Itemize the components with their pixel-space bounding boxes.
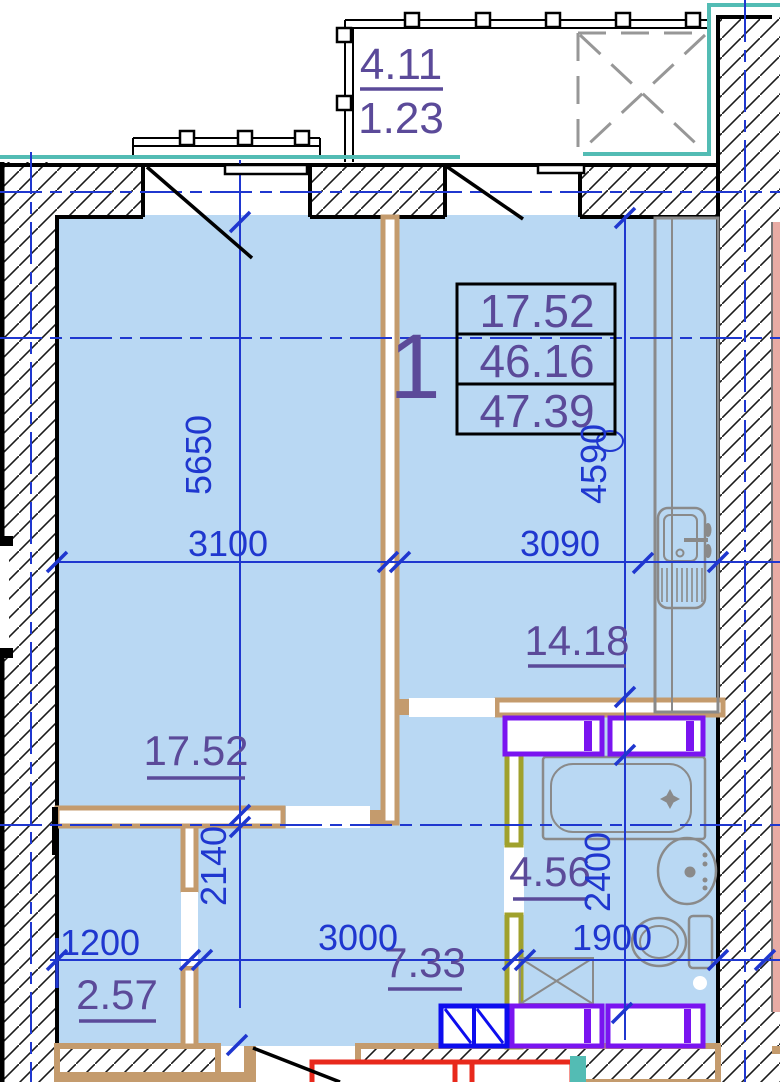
dim-kitchen-width: 3090	[520, 523, 600, 564]
living-room-area-label: 17.52	[143, 727, 248, 774]
entry-door-jamb	[244, 1046, 256, 1082]
dim-living-depth: 5650	[178, 415, 219, 495]
kitchen-passage-opening	[409, 698, 495, 717]
dim-bathroom-depth: 2400	[577, 832, 618, 912]
stair-landing	[312, 1056, 586, 1082]
dim-kitchen-depth: 4590	[573, 424, 614, 504]
neighbor-apartment-fill	[772, 222, 780, 1012]
dim-living-width: 3100	[188, 523, 268, 564]
closet-area-label: 2.57	[76, 971, 158, 1018]
dim-hallway-width: 3000	[318, 917, 398, 958]
kitchen-area-label: 14.18	[524, 617, 629, 664]
central-partition-wall	[383, 217, 397, 823]
balcony-area-top: 4.11	[360, 40, 442, 89]
apartment-area-value: 46.16	[479, 335, 594, 387]
balcony-door-leaf	[225, 165, 307, 174]
floor-plan-canvas: 17.52 46.16 47.39 1 4.11 1.23 14.18 17.5…	[0, 0, 780, 1082]
dim-bathroom-width: 1900	[572, 917, 652, 958]
balcony-area-bottom: 1.23	[358, 94, 444, 143]
apartment-number: 1	[389, 316, 440, 418]
kitchen-door-leaf	[538, 165, 584, 173]
sink-drainboard	[661, 568, 703, 602]
closet-wall-lower	[183, 968, 196, 1046]
living-area-value: 17.52	[479, 285, 594, 337]
dim-closet-width: 1200	[60, 922, 140, 963]
dim-hallway-depth: 2140	[193, 826, 234, 906]
